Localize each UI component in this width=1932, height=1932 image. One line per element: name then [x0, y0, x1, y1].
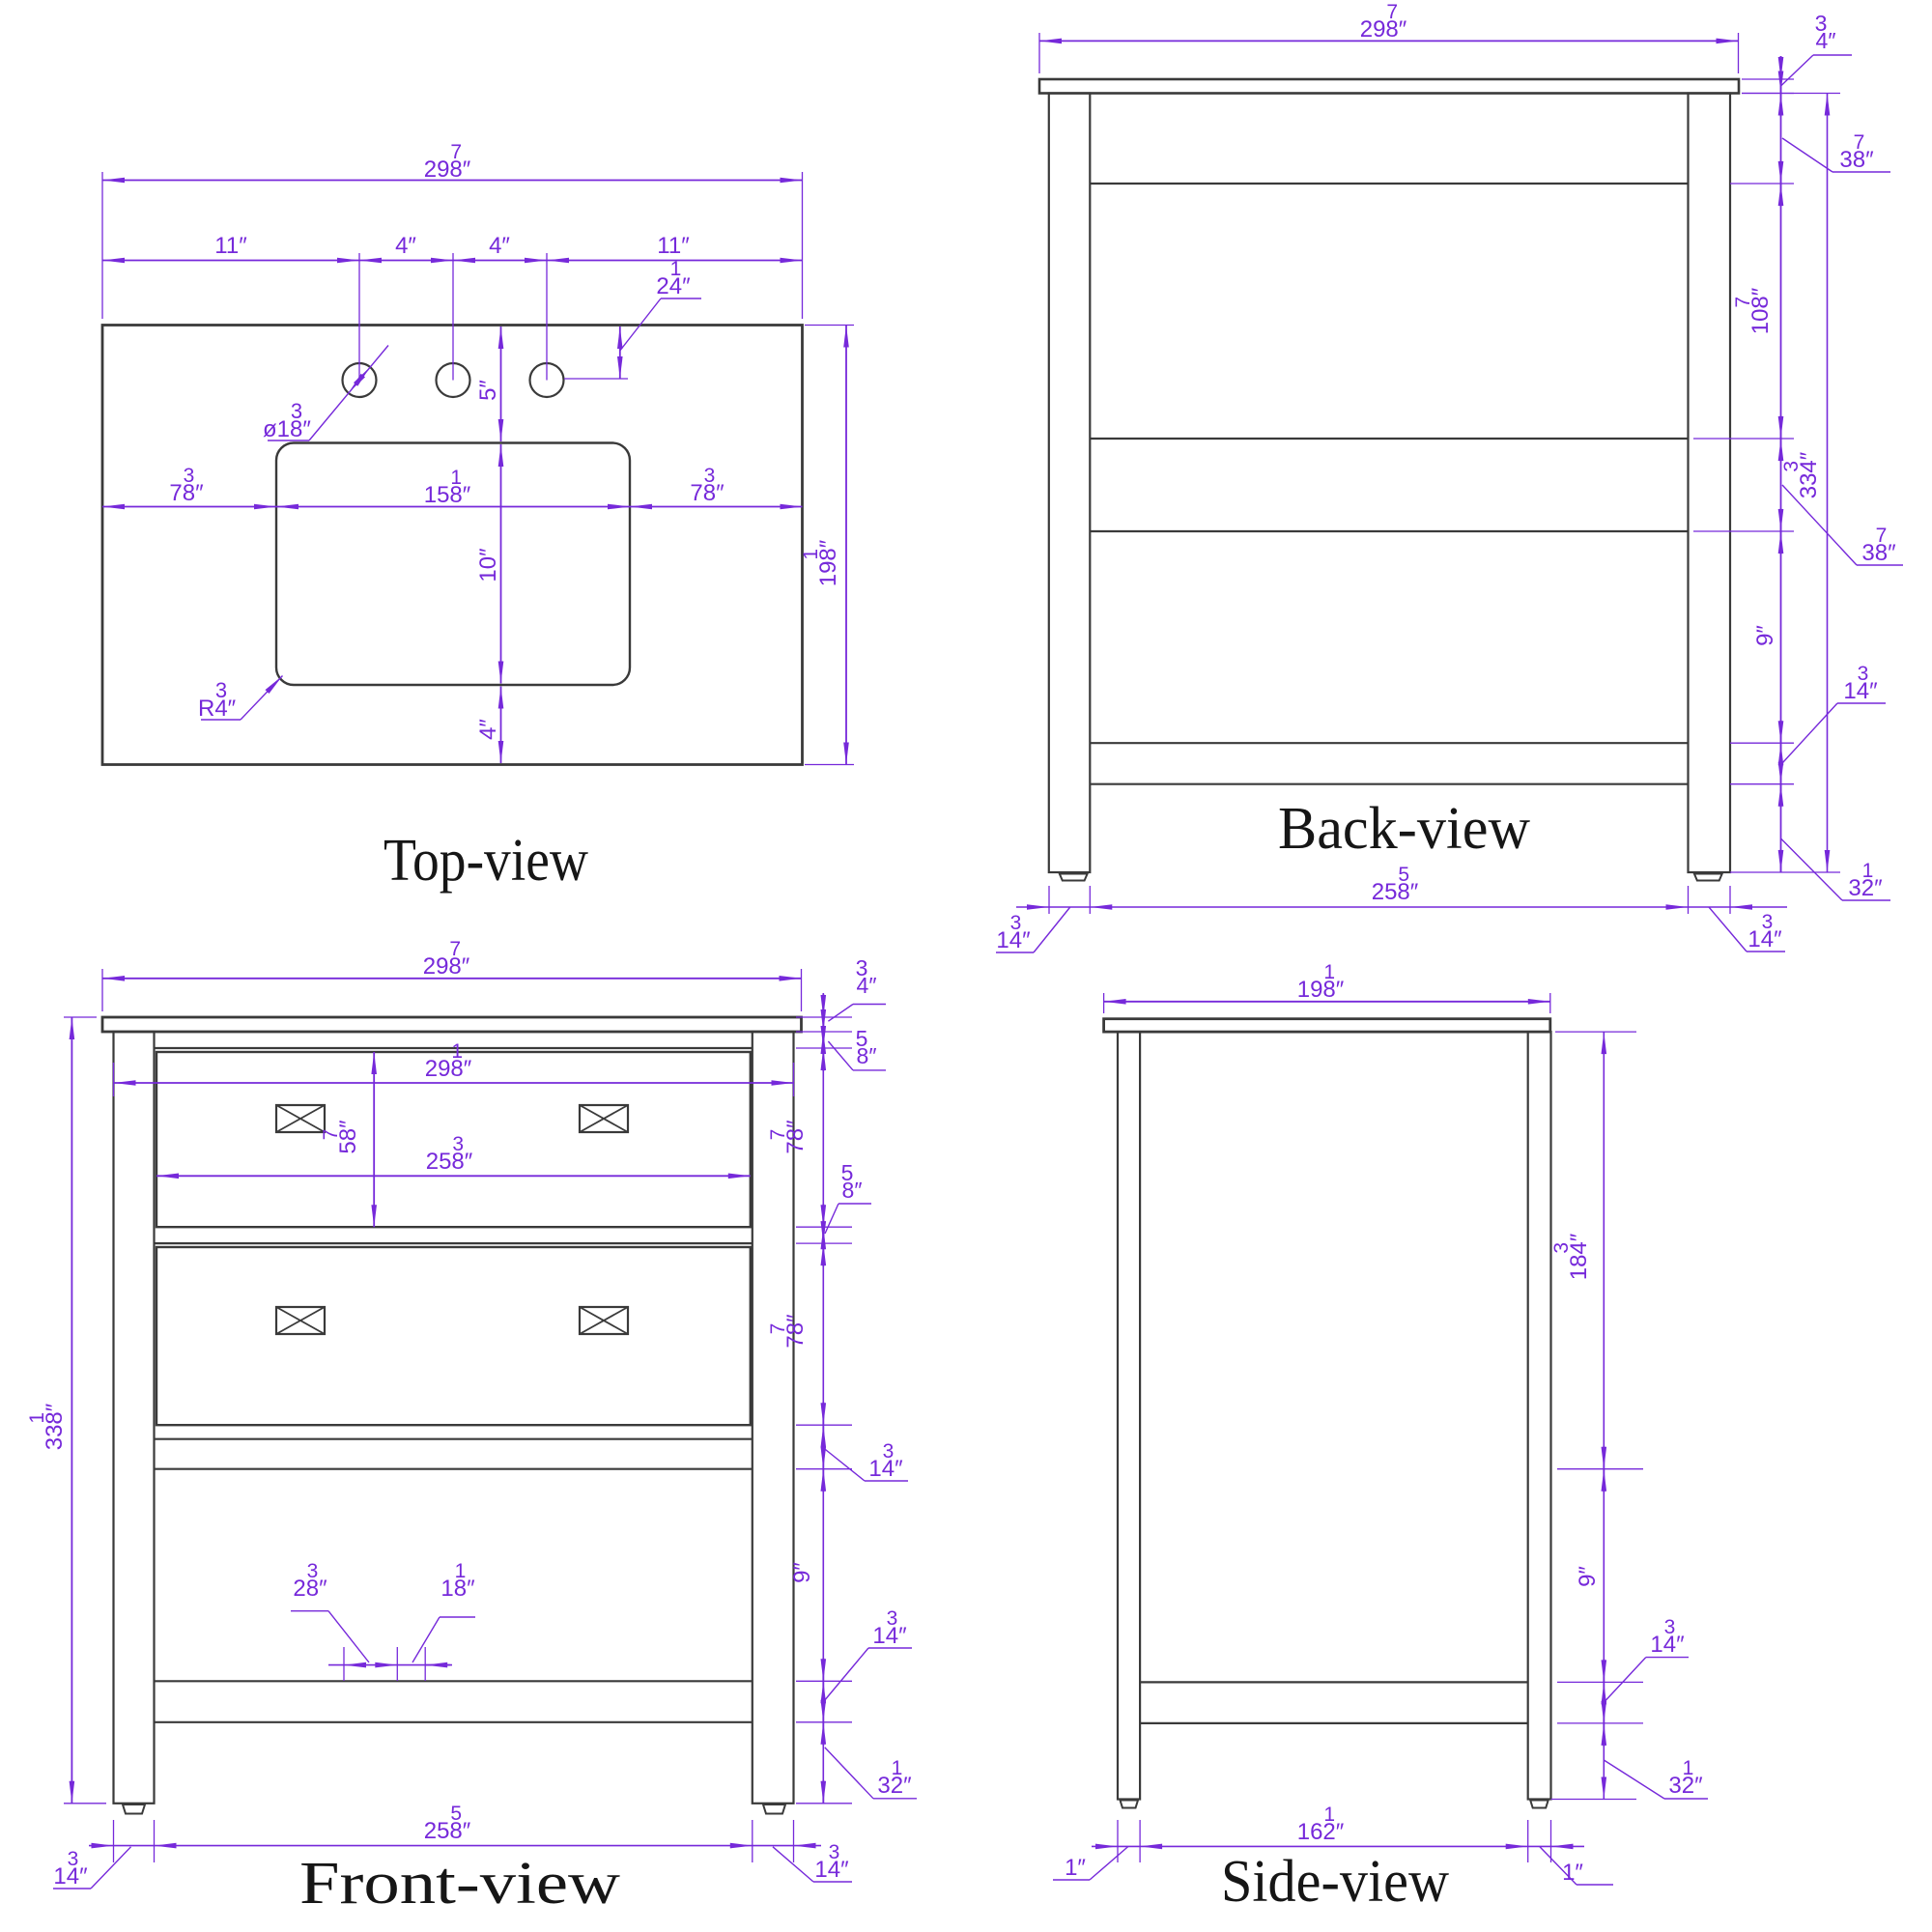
svg-text:258″: 258″: [1372, 879, 1419, 905]
svg-text:1: 1: [892, 1757, 903, 1779]
svg-text:11″: 11″: [214, 233, 247, 259]
svg-text:198″: 198″: [1297, 977, 1345, 1003]
svg-text:3: 3: [1010, 912, 1022, 934]
svg-text:3: 3: [883, 1440, 895, 1463]
svg-text:1: 1: [26, 1412, 48, 1424]
svg-text:298″: 298″: [1360, 16, 1407, 43]
svg-text:3: 3: [1815, 11, 1828, 36]
svg-text:9″: 9″: [789, 1562, 815, 1583]
svg-text:5: 5: [856, 1026, 868, 1051]
svg-text:3: 3: [68, 1848, 79, 1870]
svg-text:4″: 4″: [395, 233, 416, 259]
svg-text:5: 5: [841, 1160, 854, 1185]
svg-text:7: 7: [320, 1129, 342, 1141]
svg-text:5: 5: [1398, 864, 1409, 886]
svg-text:258″: 258″: [424, 1818, 471, 1844]
svg-text:4″: 4″: [475, 719, 501, 740]
svg-text:338″: 338″: [42, 1403, 68, 1450]
svg-text:Side-view: Side-view: [1221, 1849, 1449, 1915]
svg-text:7: 7: [767, 1323, 789, 1335]
svg-text:9″: 9″: [1575, 1566, 1601, 1587]
svg-text:1″: 1″: [1562, 1860, 1583, 1886]
svg-text:1: 1: [450, 467, 462, 489]
svg-text:Top-view: Top-view: [384, 828, 588, 894]
svg-text:298″: 298″: [425, 1056, 472, 1082]
svg-text:3: 3: [829, 1841, 840, 1863]
svg-text:4″: 4″: [489, 233, 510, 259]
svg-text:198″: 198″: [815, 539, 841, 586]
svg-text:10″: 10″: [475, 548, 501, 582]
svg-text:258″: 258″: [426, 1149, 473, 1175]
svg-text:162″: 162″: [1297, 1819, 1345, 1845]
svg-text:1: 1: [800, 549, 822, 560]
svg-text:3: 3: [215, 678, 227, 702]
svg-text:ø18″: ø18″: [263, 416, 311, 442]
svg-text:184″: 184″: [1566, 1233, 1592, 1280]
svg-text:7: 7: [767, 1129, 789, 1141]
svg-text:3: 3: [1664, 1616, 1676, 1638]
svg-text:158″: 158″: [424, 482, 471, 508]
svg-text:298″: 298″: [424, 156, 471, 183]
svg-text:1: 1: [451, 1040, 463, 1063]
svg-text:1: 1: [1323, 1804, 1335, 1826]
svg-text:Front-view: Front-view: [299, 1851, 620, 1917]
svg-text:3: 3: [452, 1133, 464, 1155]
svg-text:7: 7: [1386, 1, 1398, 23]
svg-text:11″: 11″: [657, 233, 690, 259]
svg-text:7: 7: [1876, 525, 1888, 547]
svg-text:3: 3: [291, 399, 302, 423]
svg-text:3: 3: [1858, 663, 1869, 685]
svg-text:1: 1: [455, 1560, 467, 1582]
svg-text:3: 3: [1762, 911, 1774, 933]
svg-text:3: 3: [1550, 1242, 1573, 1254]
svg-text:Back-view: Back-view: [1278, 796, 1530, 862]
svg-text:9″: 9″: [1752, 625, 1778, 646]
svg-text:3: 3: [856, 955, 868, 980]
svg-text:5: 5: [450, 1803, 462, 1825]
svg-text:7: 7: [1854, 131, 1865, 154]
svg-text:3: 3: [1780, 461, 1803, 472]
svg-text:1″: 1″: [1065, 1855, 1086, 1881]
svg-text:3: 3: [184, 465, 195, 487]
svg-text:3: 3: [704, 465, 716, 487]
svg-text:7: 7: [450, 141, 462, 163]
svg-text:334″: 334″: [1796, 451, 1822, 498]
svg-text:1: 1: [1323, 961, 1335, 983]
svg-text:3: 3: [887, 1607, 898, 1630]
svg-text:7: 7: [1732, 297, 1754, 308]
svg-text:108″: 108″: [1747, 287, 1774, 334]
svg-text:298″: 298″: [423, 953, 470, 980]
svg-text:1: 1: [670, 258, 682, 280]
svg-text:3: 3: [307, 1560, 319, 1582]
svg-text:1: 1: [1862, 860, 1874, 882]
svg-text:7: 7: [449, 938, 461, 960]
svg-text:1: 1: [1683, 1757, 1694, 1779]
svg-text:5″: 5″: [475, 380, 501, 401]
